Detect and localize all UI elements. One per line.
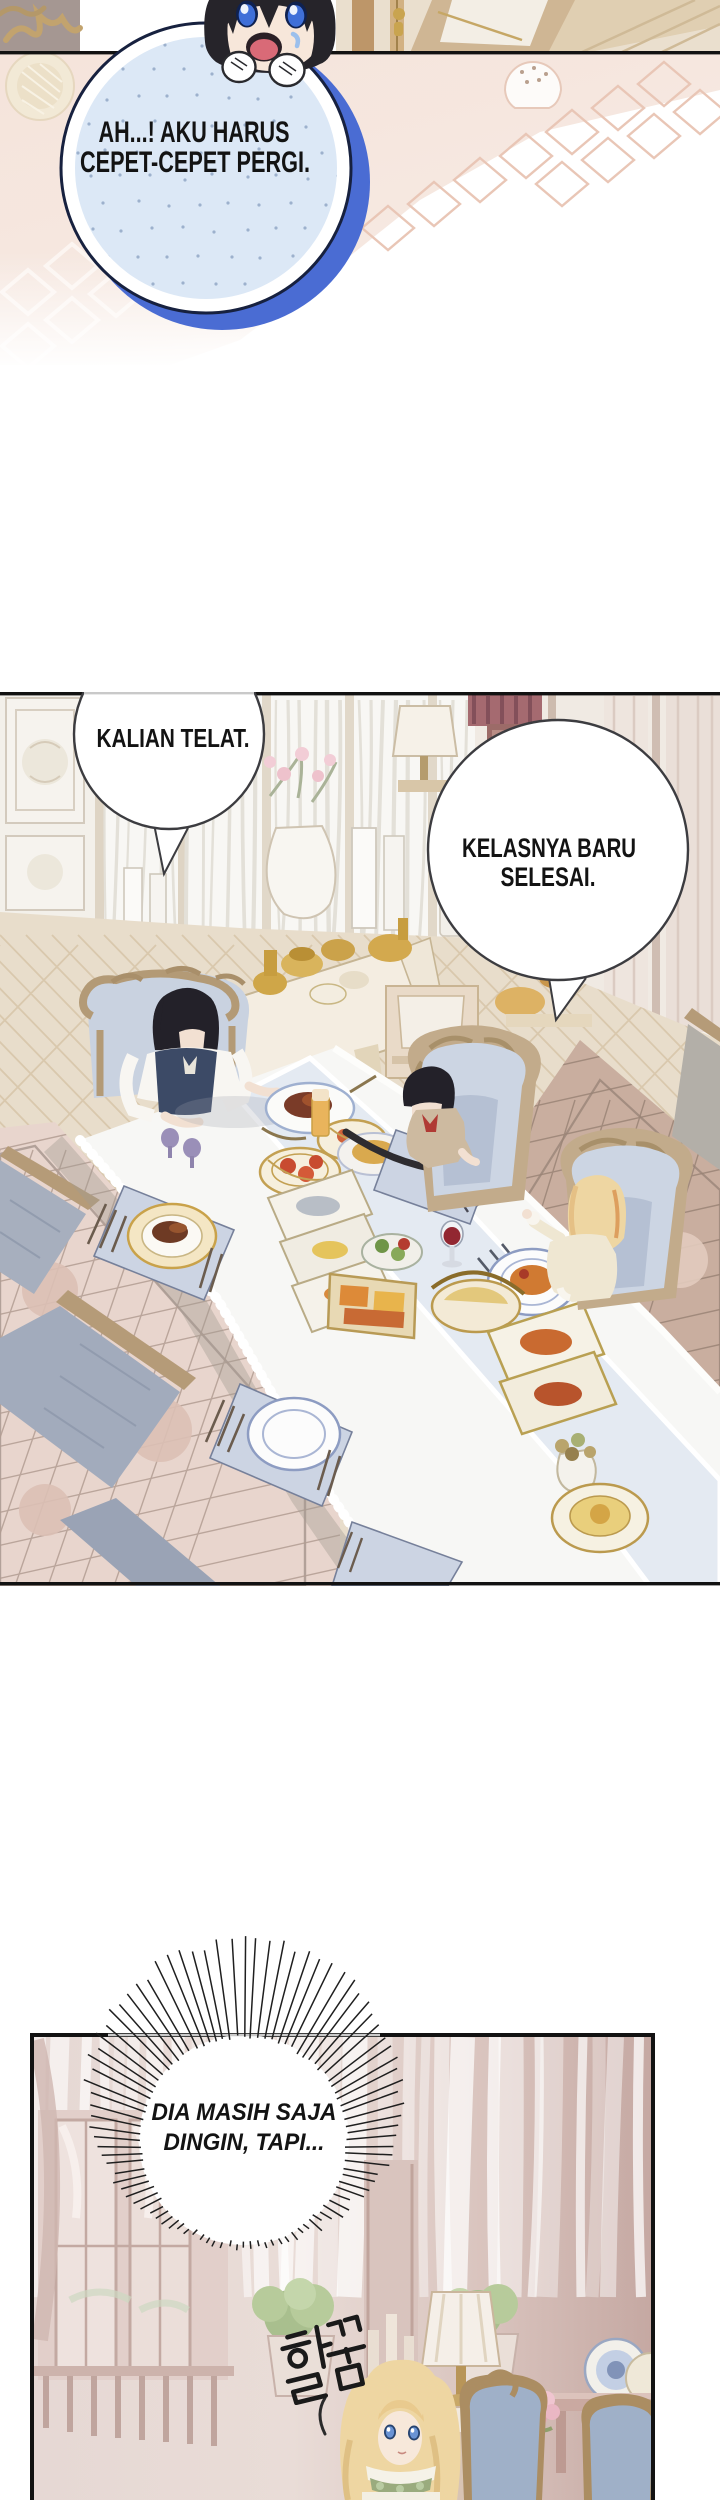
svg-text:CEPET-CEPET PERGI.: CEPET-CEPET PERGI. <box>80 146 310 179</box>
svg-text:AH...! AKU HARUS: AH...! AKU HARUS <box>99 116 290 149</box>
svg-text:DINGIN, TAPI...: DINGIN, TAPI... <box>164 2129 325 2156</box>
svg-text:DIA MASIH SAJA: DIA MASIH SAJA <box>152 2099 337 2126</box>
svg-text:SELESAI.: SELESAI. <box>501 862 596 892</box>
svg-text:KELASNYA BARU: KELASNYA BARU <box>462 833 636 863</box>
svg-text:KALIAN TELAT.: KALIAN TELAT. <box>97 723 250 753</box>
